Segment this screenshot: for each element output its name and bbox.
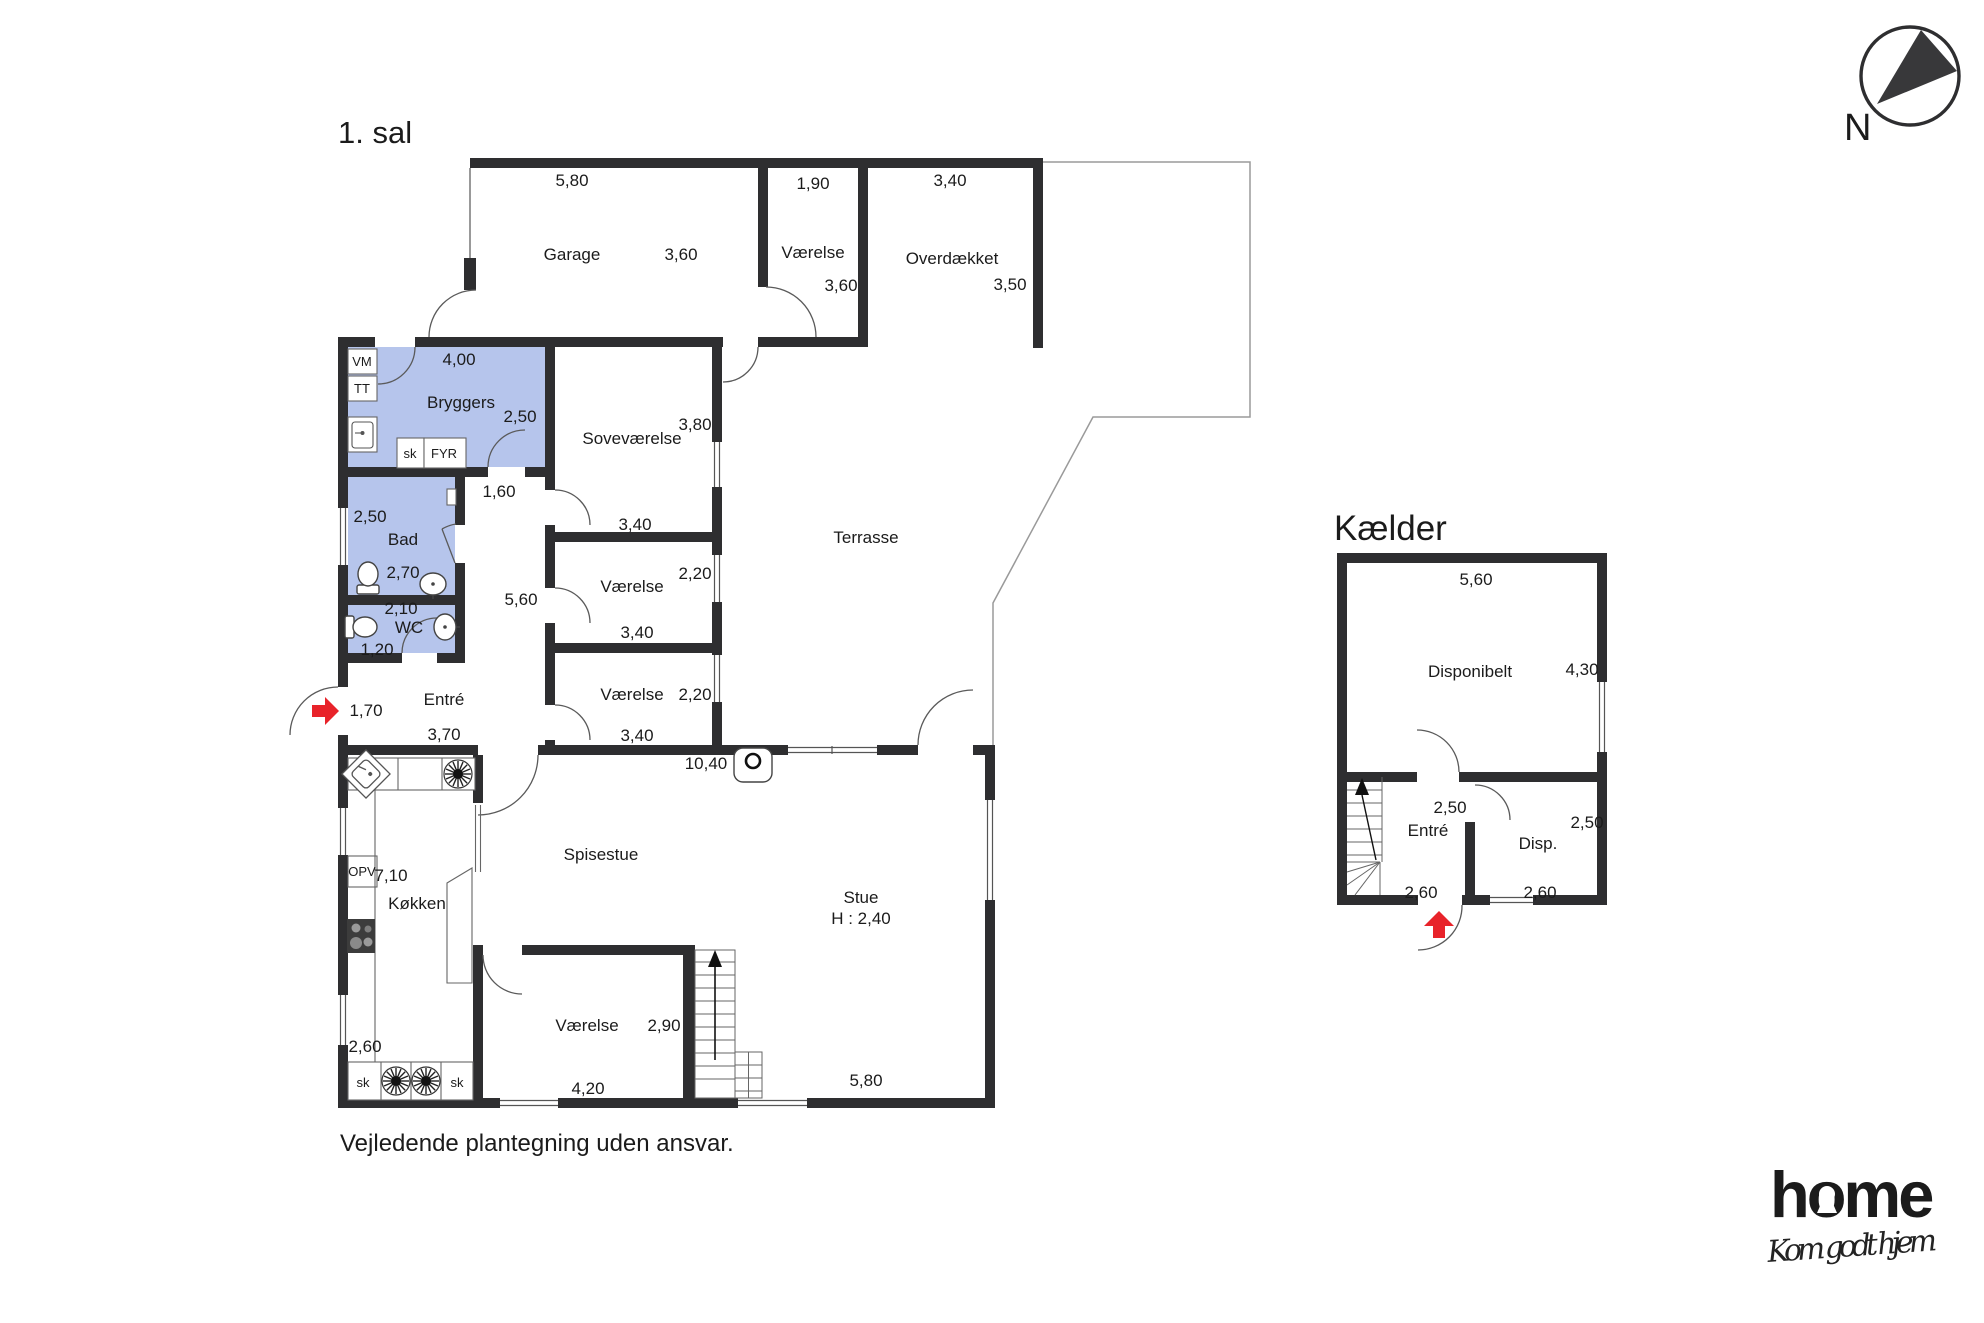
- window: [788, 746, 877, 754]
- appliance-label: TT: [354, 381, 370, 396]
- dim: 2,60: [1404, 883, 1437, 902]
- toilet-icon: [345, 616, 377, 638]
- appliance-label: FYR: [431, 446, 457, 461]
- appliance-label: sk: [451, 1075, 465, 1090]
- fan-icon: [444, 760, 472, 788]
- floorplan-page: N 1. sal 5,80 Garage 3,60 1,90 Værelse 3…: [0, 0, 1984, 1323]
- room-label: Værelse: [555, 1016, 618, 1035]
- room-label: Værelse: [600, 685, 663, 704]
- room-label: Terrasse: [833, 528, 898, 547]
- floor-title: 1. sal: [338, 115, 412, 150]
- fan-icon: [412, 1067, 440, 1095]
- dim: 3,50: [993, 275, 1026, 294]
- dim: 3,40: [620, 623, 653, 642]
- door-arc: [429, 290, 476, 337]
- dim: 3,60: [824, 276, 857, 295]
- radiator-icon: [447, 489, 456, 505]
- room-label: Værelse: [600, 577, 663, 596]
- disclaimer-text: Vejledende plantegning uden ansvar.: [340, 1130, 734, 1157]
- dim: 4,30: [1565, 660, 1598, 679]
- window: [738, 1101, 807, 1106]
- dim: 3,80: [678, 415, 711, 434]
- room-label: Entré: [424, 690, 465, 709]
- dim: 3,60: [664, 245, 697, 264]
- dim: 2,20: [678, 685, 711, 704]
- staircase: [1347, 777, 1382, 895]
- dim: 5,80: [849, 1071, 882, 1090]
- door-arc: [555, 490, 590, 525]
- wood-stove-icon: [734, 748, 772, 782]
- door-arc: [555, 588, 590, 623]
- room-label: Soveværelse: [582, 429, 681, 448]
- dim: 3,40: [620, 726, 653, 745]
- door-arc: [1475, 785, 1510, 820]
- dim: 1,20: [360, 640, 393, 659]
- door-arc: [478, 755, 538, 815]
- window: [341, 808, 346, 855]
- door-arc: [483, 955, 522, 994]
- first-floor-plan: [290, 158, 1250, 1108]
- dim: 3,40: [933, 171, 966, 190]
- door-arc: [723, 347, 758, 382]
- room-label: Garage: [544, 245, 601, 264]
- dim: 2,90: [647, 1016, 680, 1035]
- room-label: Disp.: [1519, 834, 1558, 853]
- dim: 2,60: [348, 1037, 381, 1056]
- room-label: Spisestue: [564, 845, 639, 864]
- room-label: Bad: [388, 530, 418, 549]
- dim: 4,20: [571, 1079, 604, 1098]
- walls: [1337, 553, 1607, 905]
- room-label: WC: [395, 618, 423, 637]
- north-label: N: [1844, 107, 1871, 149]
- dim: 5,80: [555, 171, 588, 190]
- ceiling-height-label: H : 2,40: [831, 909, 891, 928]
- room-label: Entré: [1408, 821, 1449, 840]
- dim: 3,70: [427, 725, 460, 744]
- entrance-arrow-icon: [1424, 911, 1454, 938]
- dim: 1,90: [796, 174, 829, 193]
- room-label: Disponibelt: [1428, 662, 1512, 681]
- window: [500, 1101, 558, 1106]
- brand-logo-text: home: [1770, 1158, 1932, 1231]
- dim: 2,20: [678, 564, 711, 583]
- room-label: Stue: [844, 888, 879, 907]
- dim: 2,70: [386, 563, 419, 582]
- entrance-arrow-icon: [312, 697, 339, 725]
- room-label: Køkken: [388, 894, 446, 913]
- door-arcs: [1417, 730, 1510, 950]
- dim: 3,40: [618, 515, 651, 534]
- window: [715, 442, 720, 487]
- dim: 7,10: [374, 866, 407, 885]
- door-arc: [1417, 730, 1459, 772]
- window: [715, 555, 720, 602]
- appliance-label: sk: [357, 1075, 371, 1090]
- dim: 2,50: [1570, 813, 1603, 832]
- door-arc: [555, 705, 590, 740]
- window: [1600, 682, 1605, 752]
- toilet-icon: [357, 562, 379, 594]
- appliance-label: sk: [404, 446, 418, 461]
- window: [988, 800, 993, 900]
- room-label: Værelse: [781, 243, 844, 262]
- stove-icon: [347, 919, 375, 953]
- dim: 1,60: [482, 482, 515, 501]
- door-arc: [766, 287, 816, 337]
- terrace-outline: [993, 162, 1250, 745]
- dim: 1,70: [349, 701, 382, 720]
- tall-cabinet-icon: [447, 868, 472, 983]
- dim: 2,10: [384, 599, 417, 618]
- basement-plan: [1337, 553, 1607, 950]
- laundry-sink-icon: [348, 417, 377, 452]
- north-compass-icon: N: [1844, 27, 1959, 149]
- window: [341, 995, 346, 1045]
- floorplan-drawing: N 1. sal 5,80 Garage 3,60 1,90 Værelse 3…: [0, 0, 1984, 1323]
- windows: [1490, 682, 1605, 903]
- dim: 5,60: [504, 590, 537, 609]
- dim: 2,60: [1523, 883, 1556, 902]
- door-arc: [918, 690, 973, 745]
- dim: 5,60: [1459, 570, 1492, 589]
- room-label: Bryggers: [427, 393, 495, 412]
- dim: 10,40: [685, 754, 728, 773]
- dim: 4,00: [442, 350, 475, 369]
- corner-sink-icon: [342, 750, 390, 798]
- dim: 2,50: [1433, 798, 1466, 817]
- window: [341, 508, 346, 565]
- dim: 2,50: [503, 407, 536, 426]
- room-label: Overdækket: [906, 249, 999, 268]
- fan-icon: [382, 1067, 410, 1095]
- appliance-label: VM: [352, 354, 372, 369]
- dim: 2,50: [353, 507, 386, 526]
- basement-title: Kælder: [1334, 509, 1447, 548]
- staircase: [695, 950, 762, 1098]
- brand-logo: home Kom godt hjem: [1765, 1158, 1938, 1270]
- window: [715, 655, 720, 702]
- appliance-label: OPV: [348, 864, 376, 879]
